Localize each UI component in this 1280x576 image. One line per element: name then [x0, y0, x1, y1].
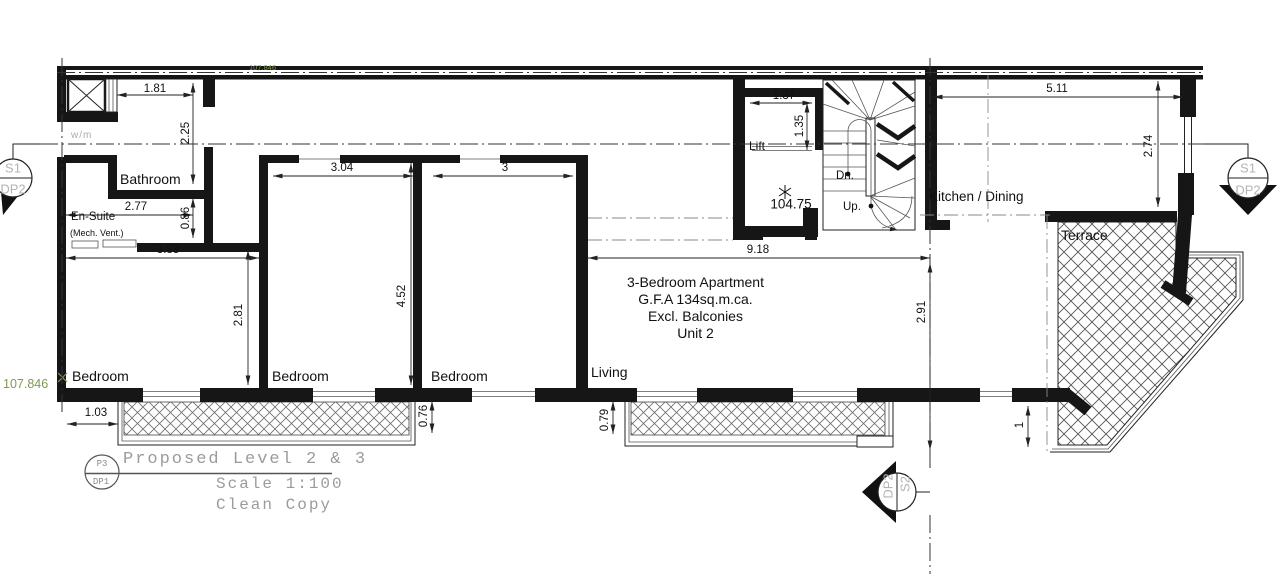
titleblock-ref-top: P3 — [97, 459, 108, 469]
dim-living-depth: 2.91 — [916, 301, 928, 323]
unit-annotation-line2: G.F.A 134sq.m.ca. — [593, 291, 798, 308]
balcony-left — [118, 400, 415, 445]
unit-annotation-line4: Unit 2 — [593, 325, 798, 342]
staircase — [823, 80, 915, 230]
room-label-living: Living — [591, 364, 628, 380]
dim-kitchen-depth: 2.74 — [1143, 135, 1155, 157]
level-datum-top: 107.846 — [249, 63, 276, 72]
dim-balcony1-offset: 1.03 — [85, 407, 107, 419]
unit-annotation-line1: 3-Bedroom Apartment — [593, 274, 798, 291]
dim-shaft-width: 1.81 — [144, 83, 166, 95]
section-bottom-ref: S2 — [898, 476, 913, 492]
titleblock-ref-bottom: DP1 — [93, 477, 109, 487]
room-label-ensuite: En-Suite — [71, 211, 115, 223]
stair-up-label: Up. — [843, 201, 861, 213]
room-label-ensuite-note: (Mech. Vent.) — [70, 228, 124, 238]
unit-annotation: 3-Bedroom Apartment G.F.A 134sq.m.ca. Ex… — [593, 274, 798, 342]
drawing-note: Clean Copy — [216, 496, 332, 514]
dim-lift-width: 1.37 — [773, 90, 795, 102]
room-label-lift: Lift — [749, 139, 765, 153]
section-bottom-sheet: DP2 — [881, 473, 896, 498]
terrace-deck — [1050, 222, 1243, 452]
drawing-title: Proposed Level 2 & 3 — [123, 450, 367, 469]
room-label-bedroom-3: Bedroom — [431, 368, 488, 384]
drawing-scale: Scale 1:100 — [216, 475, 344, 493]
dim-balcony2-depth: 0.79 — [599, 409, 611, 431]
dim-hall-depth: 2.25 — [180, 122, 192, 144]
room-label-bathroom: Bathroom — [120, 171, 181, 187]
dim-ensuite-width: 2.77 — [125, 201, 147, 213]
level-datum-left: 107.846 — [3, 377, 48, 391]
walls — [57, 66, 1203, 411]
dim-bedroom3-width: 3 — [502, 162, 508, 174]
section-right-sheet: DP2 — [1235, 183, 1260, 198]
room-label-kitchen-dining: Kitchen / Dining — [929, 189, 1024, 204]
dim-bedroom2-width: 3.04 — [331, 162, 353, 174]
dim-lift-depth: 1.35 — [794, 115, 806, 137]
room-label-bedroom-2: Bedroom — [272, 368, 329, 384]
dim-bedroom1-width: 3.83 — [157, 244, 179, 256]
dim-living-width: 9.18 — [747, 244, 769, 256]
room-label-terrace: Terrace — [1061, 227, 1108, 243]
section-left-ref: S1 — [5, 161, 21, 176]
dim-bath-door: 0.86 — [180, 207, 192, 229]
dim-kitchen-width: 5.11 — [1046, 83, 1068, 95]
dim-bedroom-depth: 4.52 — [396, 285, 408, 307]
section-right-ref: S1 — [1240, 161, 1256, 176]
details — [58, 79, 1192, 397]
dim-bedroom1-depth: 2.81 — [233, 304, 245, 326]
section-left-sheet: DP2 — [0, 182, 25, 197]
washing-machine-label: w/m — [71, 130, 92, 141]
room-label-bedroom-1: Bedroom — [72, 368, 129, 384]
level-stair-landing: 104.75 — [770, 197, 811, 212]
stair-down-label: Dn. — [836, 170, 854, 182]
unit-annotation-line3: Excl. Balconies — [593, 308, 798, 325]
balcony-right — [625, 400, 893, 447]
floorplan-canvas: Bathroom En-Suite (Mech. Vent.) Bedroom … — [0, 0, 1280, 576]
dim-terrace-rail: 1 — [1014, 422, 1026, 428]
dim-balcony1-depth: 0.76 — [418, 405, 430, 427]
